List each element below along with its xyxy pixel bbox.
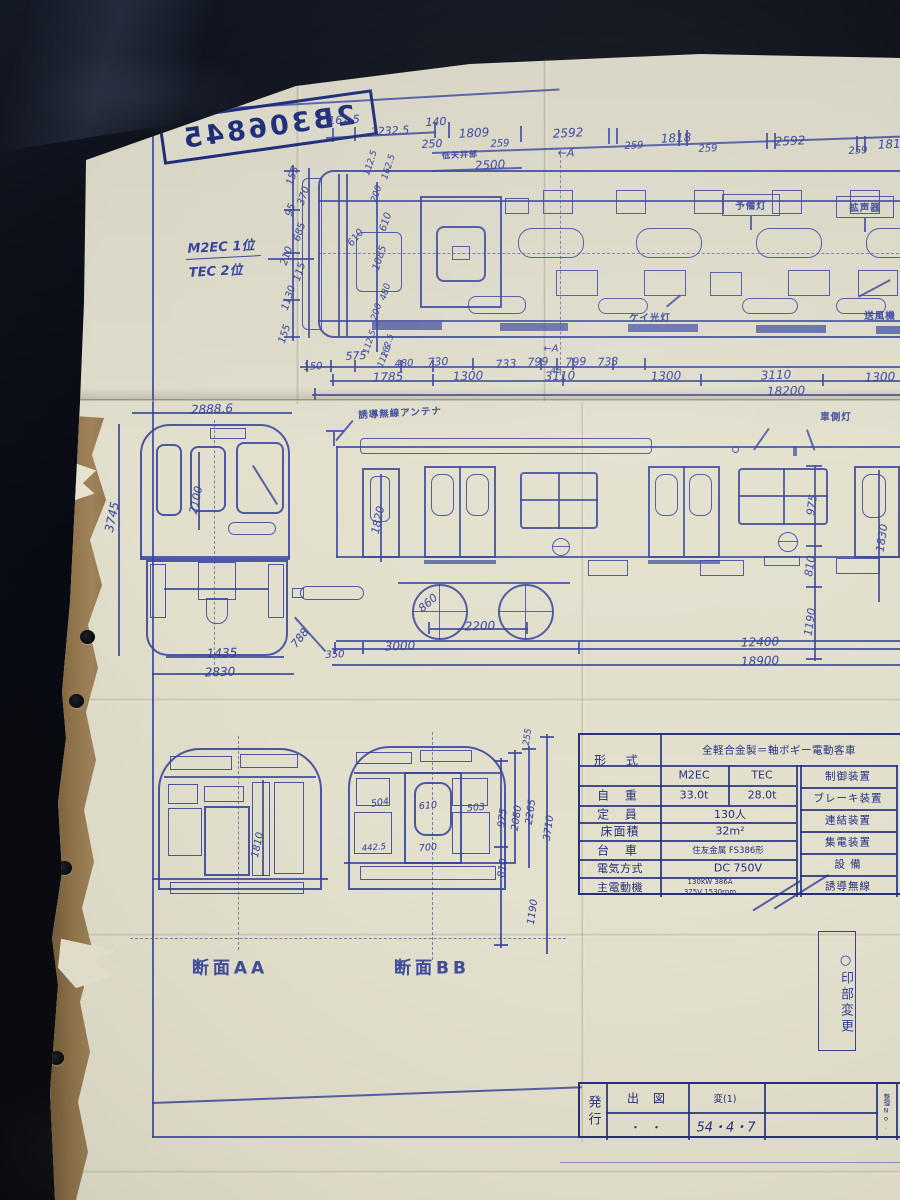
drawing-shape bbox=[360, 866, 496, 880]
drawing-shape bbox=[198, 562, 236, 600]
dimension-label: 350 bbox=[325, 649, 344, 661]
drawing-shape bbox=[526, 622, 528, 634]
spec-label: 定 員 bbox=[597, 805, 643, 822]
spec-right-label: 設 備 bbox=[834, 857, 861, 872]
dimension-label: 259 bbox=[490, 138, 510, 150]
drawing-shape bbox=[330, 380, 900, 382]
drawing-shape bbox=[152, 112, 154, 1138]
drawing-shape bbox=[644, 270, 686, 296]
drawing-shape bbox=[344, 862, 514, 864]
drawing-shape bbox=[494, 944, 508, 946]
dimension-label: 610 bbox=[418, 800, 437, 813]
drawing-shape bbox=[452, 812, 490, 854]
dimension-label: 2200 bbox=[464, 618, 495, 633]
drawing-shape bbox=[318, 200, 900, 202]
dimension-label: 150 bbox=[303, 361, 323, 373]
drawing-shape bbox=[588, 560, 628, 576]
spec-model: TEC bbox=[751, 769, 772, 782]
drawing-shape bbox=[806, 545, 822, 547]
drawing-shape bbox=[252, 782, 270, 876]
drawing-shape bbox=[214, 420, 215, 670]
revision-label: 変(1) bbox=[714, 1091, 737, 1105]
drawing-shape bbox=[694, 190, 724, 214]
drawing-shape bbox=[648, 560, 720, 564]
reference-number-label: 整理No. bbox=[881, 1094, 891, 1131]
drawing-shape bbox=[522, 748, 536, 750]
spec-right-label: ブレーキ装置 bbox=[814, 791, 883, 806]
spec-value: 28.0t bbox=[748, 789, 777, 802]
equipment-label: 誘導無線アンテナ bbox=[358, 403, 442, 421]
drawing-shape bbox=[552, 546, 570, 547]
drawing-shape bbox=[118, 424, 120, 656]
spec-value: 住友金属 FS386形 bbox=[692, 844, 764, 856]
sheet-fold-edge bbox=[58, 399, 900, 402]
dimension-label: 1809 bbox=[458, 125, 489, 141]
drawing-shape bbox=[578, 642, 580, 654]
dimension-label: 799 bbox=[565, 355, 587, 369]
drawing-shape bbox=[362, 642, 364, 654]
dimension-label: 250 bbox=[421, 137, 443, 151]
equipment-label: 低天井部 bbox=[442, 149, 479, 162]
spec-label: 自 重 bbox=[597, 787, 643, 804]
dimension-label: 259 bbox=[624, 140, 644, 152]
punch-hole bbox=[69, 694, 84, 708]
drawing-shape bbox=[240, 754, 298, 768]
drawing-shape bbox=[292, 588, 304, 598]
punch-hole bbox=[80, 630, 95, 644]
dimension-label: 975 bbox=[496, 808, 510, 828]
drawing-shape bbox=[546, 734, 548, 954]
drawing-shape bbox=[398, 582, 570, 584]
dimension-label: 3710 bbox=[542, 815, 556, 842]
drawing-shape bbox=[508, 752, 522, 754]
spec-right-label: 制御装置 bbox=[825, 769, 871, 784]
table-grid-line bbox=[896, 765, 898, 897]
drawing-shape bbox=[520, 499, 598, 501]
drawing-shape bbox=[520, 126, 522, 142]
drawing-shape bbox=[164, 776, 316, 778]
revision-date: 54・4・7 bbox=[696, 1117, 755, 1136]
title-block: 発行 出図 ・・ 変(1) 54・4・7 整理No. bbox=[578, 1082, 900, 1138]
drawing-shape bbox=[170, 756, 232, 770]
dimension-label: 1818 bbox=[877, 136, 900, 152]
drawing-shape bbox=[424, 560, 496, 564]
table-grid-line bbox=[800, 831, 896, 833]
drawing-shape bbox=[616, 190, 646, 214]
dimension-label: 1300 bbox=[650, 368, 681, 383]
dimension-label: 810 bbox=[802, 555, 818, 578]
drawing-shape bbox=[683, 466, 685, 558]
revision-note: ○印部変更 bbox=[818, 931, 856, 1051]
spec-model: M2EC bbox=[678, 769, 709, 782]
spec-label: 形 式 bbox=[594, 752, 646, 769]
punch-hole bbox=[49, 1051, 64, 1065]
spec-value: 33.0t bbox=[680, 789, 709, 802]
issue-figure-value: ・・ bbox=[620, 1119, 672, 1135]
dimension-label: 95 bbox=[284, 202, 298, 218]
dimension-label: 3110 bbox=[760, 367, 791, 382]
dimension-label: 2592 bbox=[774, 133, 805, 149]
drawing-shape bbox=[168, 784, 198, 804]
spec-label: 主電動機 bbox=[597, 879, 643, 895]
dimension-label: 730 bbox=[427, 355, 449, 369]
equipment-label: 車側灯 bbox=[820, 409, 852, 423]
drawing-shape bbox=[783, 468, 785, 525]
drawing-shape bbox=[372, 322, 442, 330]
drawing-shape bbox=[494, 846, 508, 848]
drawing-shape bbox=[156, 444, 182, 516]
equipment-label: 送風機 bbox=[864, 308, 896, 322]
drawing-shape bbox=[318, 253, 900, 254]
dimension-label: 259 bbox=[848, 145, 868, 157]
dimension-label: 2888.6 bbox=[191, 401, 233, 416]
drawing-shape bbox=[608, 128, 610, 144]
spec-right-label: 集電装置 bbox=[825, 835, 871, 850]
blueprint-paper: 2B306845 M2EC 1位 TEC 2位 形 式全軽合金製＝軸ボギー電動客… bbox=[0, 0, 900, 1200]
spec-value: 32m² bbox=[715, 825, 744, 838]
dimension-label: 1818 bbox=[660, 130, 691, 146]
drawing-shape bbox=[864, 218, 866, 232]
dimension-label: 799 bbox=[527, 355, 549, 369]
drawing-shape bbox=[793, 446, 797, 456]
issuer-label: 発行 bbox=[584, 1095, 603, 1129]
drawing-shape bbox=[354, 772, 500, 774]
drawing-shape bbox=[336, 446, 338, 558]
drawing-shape bbox=[750, 216, 752, 230]
drawing-shape bbox=[543, 190, 573, 214]
drawing-shape bbox=[152, 1086, 582, 1104]
table-grid-line bbox=[800, 875, 896, 877]
drawing-shape bbox=[655, 474, 678, 516]
dimension-label: 3110 bbox=[544, 368, 575, 383]
dimension-label: 1232.5 bbox=[370, 124, 409, 139]
dimension-label: 12400 bbox=[741, 634, 780, 649]
drawing-shape bbox=[710, 272, 742, 296]
drawing-shape bbox=[268, 564, 284, 618]
dimension-label: 503 bbox=[466, 802, 485, 815]
drawing-shape bbox=[332, 374, 334, 386]
drawing-shape bbox=[616, 128, 618, 144]
drawing-shape bbox=[238, 736, 239, 950]
drawing-shape bbox=[168, 808, 202, 856]
dimension-label: 810 bbox=[496, 858, 510, 878]
drawing-shape bbox=[778, 541, 798, 542]
drawing-shape bbox=[338, 174, 340, 336]
dimension-label: 788 bbox=[288, 626, 311, 651]
spec-label: 床面積 bbox=[600, 823, 639, 840]
drawing-shape bbox=[262, 780, 264, 876]
dimension-label: 140 bbox=[425, 115, 447, 129]
spec-value: DC 750V bbox=[714, 862, 762, 875]
dimension-label: 2500 bbox=[474, 157, 505, 173]
spec-table: 形 式全軽合金製＝軸ボギー電動客車M2ECTEC自 重33.0t28.0t定 員… bbox=[578, 733, 900, 895]
photo-of-blueprint: 2B306845 M2EC 1位 TEC 2位 形 式全軽合金製＝軸ボギー電動客… bbox=[0, 0, 900, 1200]
dimension-label: 733 bbox=[495, 357, 517, 371]
drawing-shape bbox=[332, 664, 900, 666]
drawing-shape bbox=[336, 446, 900, 448]
dimension-label: 1435 bbox=[206, 645, 237, 660]
drawing-shape bbox=[876, 326, 900, 334]
spec-value: 130人 bbox=[714, 806, 746, 822]
drawing-shape bbox=[164, 588, 268, 590]
drawing-shape bbox=[152, 878, 328, 880]
dimension-label: 1130 bbox=[280, 284, 298, 312]
drawing-shape bbox=[766, 133, 768, 149]
drawing-shape bbox=[689, 474, 712, 516]
dimension-label: 733 bbox=[597, 355, 619, 369]
equipment-label: 拡声器 bbox=[849, 200, 881, 214]
drawing-shape bbox=[459, 466, 461, 558]
spec-value: 375V 1530rpm bbox=[684, 888, 736, 896]
drawing-shape bbox=[432, 374, 434, 386]
drawing-shape bbox=[700, 374, 702, 386]
drawing-shape bbox=[439, 584, 440, 640]
drawing-shape bbox=[628, 324, 698, 332]
table-grid-line bbox=[800, 809, 896, 811]
drawing-shape bbox=[500, 758, 502, 948]
drawing-shape bbox=[140, 556, 290, 558]
equipment-label: ケイ光灯 bbox=[629, 310, 671, 324]
spec-class-value: 全軽合金製＝軸ボギー電動客車 bbox=[702, 743, 856, 758]
drawing-shape bbox=[210, 428, 246, 439]
drawing-shape bbox=[806, 465, 822, 467]
drawing-shape bbox=[228, 522, 276, 535]
dimension-label: 18900 bbox=[741, 653, 780, 668]
drawing-shape bbox=[300, 586, 364, 600]
dimension-label: 1300 bbox=[864, 369, 895, 384]
dimension-label: 155 bbox=[277, 323, 293, 345]
drawing-shape bbox=[806, 586, 822, 588]
dimension-label: 1300 bbox=[452, 368, 483, 383]
train-drawing: 2B306845 M2EC 1位 TEC 2位 形 式全軽合金製＝軸ボギー電動客… bbox=[0, 0, 900, 1200]
drawing-shape bbox=[428, 622, 430, 634]
drawing-shape bbox=[560, 150, 561, 375]
dimension-label: 255 bbox=[522, 728, 534, 746]
table-grid-line bbox=[800, 853, 896, 855]
drawing-shape bbox=[448, 122, 450, 138]
spec-right-label: 誘導無線 bbox=[825, 879, 871, 894]
drawing-shape bbox=[332, 648, 900, 650]
drawing-shape bbox=[558, 472, 560, 529]
drawing-shape bbox=[420, 750, 472, 762]
drawing-shape bbox=[356, 752, 412, 764]
drawing-shape bbox=[556, 270, 598, 296]
dimension-label: 700 bbox=[418, 842, 437, 855]
dimension-label: 1190 bbox=[526, 899, 540, 926]
drawing-shape bbox=[756, 325, 826, 333]
drawing-shape bbox=[806, 658, 822, 660]
car-type-label: M2EC 1位 TEC 2位 bbox=[185, 234, 262, 281]
section-marker: ←A bbox=[558, 147, 575, 160]
drawing-shape bbox=[204, 806, 250, 876]
dimension-label: 480 bbox=[394, 358, 414, 370]
drawing-shape bbox=[206, 598, 228, 624]
table-grid-line bbox=[660, 735, 662, 897]
drawing-shape bbox=[130, 938, 566, 939]
spec-right-label: 連結装置 bbox=[825, 813, 871, 828]
dimension-label: 1785 bbox=[372, 369, 403, 384]
drawing-shape bbox=[466, 474, 489, 516]
spec-label: 電気方式 bbox=[597, 860, 643, 876]
drawing-shape bbox=[788, 270, 830, 296]
dimension-label: 155 bbox=[285, 165, 301, 187]
drawing-shape bbox=[170, 882, 304, 894]
spec-value: 130KW 386A bbox=[688, 878, 733, 886]
dimension-label: 2265 bbox=[524, 799, 538, 826]
car-type-line2: TEC 2位 bbox=[186, 256, 262, 281]
table-grid-line bbox=[796, 765, 798, 897]
drawing-shape bbox=[560, 1162, 900, 1163]
table-grid-line bbox=[800, 787, 896, 789]
drawing-shape bbox=[822, 374, 824, 386]
dimension-label: 575 bbox=[345, 349, 367, 363]
drawing-shape bbox=[742, 298, 798, 314]
spec-label: 台 車 bbox=[597, 841, 643, 858]
drawing-shape bbox=[836, 558, 880, 574]
drawing-shape bbox=[431, 474, 454, 516]
dimension-label: 1190 bbox=[802, 607, 819, 637]
drawing-shape bbox=[500, 323, 568, 331]
dimension-label: 2080 bbox=[510, 805, 524, 832]
section-caption: 断面BB bbox=[394, 954, 470, 979]
drawing-shape bbox=[330, 360, 332, 372]
dimension-label: 3000 bbox=[384, 638, 415, 653]
section-marker: ←A bbox=[543, 344, 558, 355]
dimension-label: 2830 bbox=[204, 664, 235, 679]
drawing-shape bbox=[274, 782, 304, 874]
drawing-shape bbox=[644, 358, 646, 370]
dimension-label: 162.5 bbox=[328, 113, 360, 128]
dimension-label: 2592 bbox=[552, 125, 583, 141]
punch-hole bbox=[57, 861, 72, 875]
issue-figure-label: 出図 bbox=[613, 1090, 679, 1107]
drawing-shape bbox=[862, 474, 886, 518]
drawing-shape bbox=[468, 296, 526, 314]
section-caption: 断面AA bbox=[192, 954, 268, 979]
equipment-label: 予備灯 bbox=[735, 198, 767, 212]
drawing-shape bbox=[494, 760, 508, 762]
dimension-label: 259 bbox=[698, 143, 718, 155]
dimension-label: 442.5 bbox=[361, 842, 386, 854]
drawing-shape bbox=[346, 174, 348, 336]
drawing-shape bbox=[540, 736, 554, 738]
